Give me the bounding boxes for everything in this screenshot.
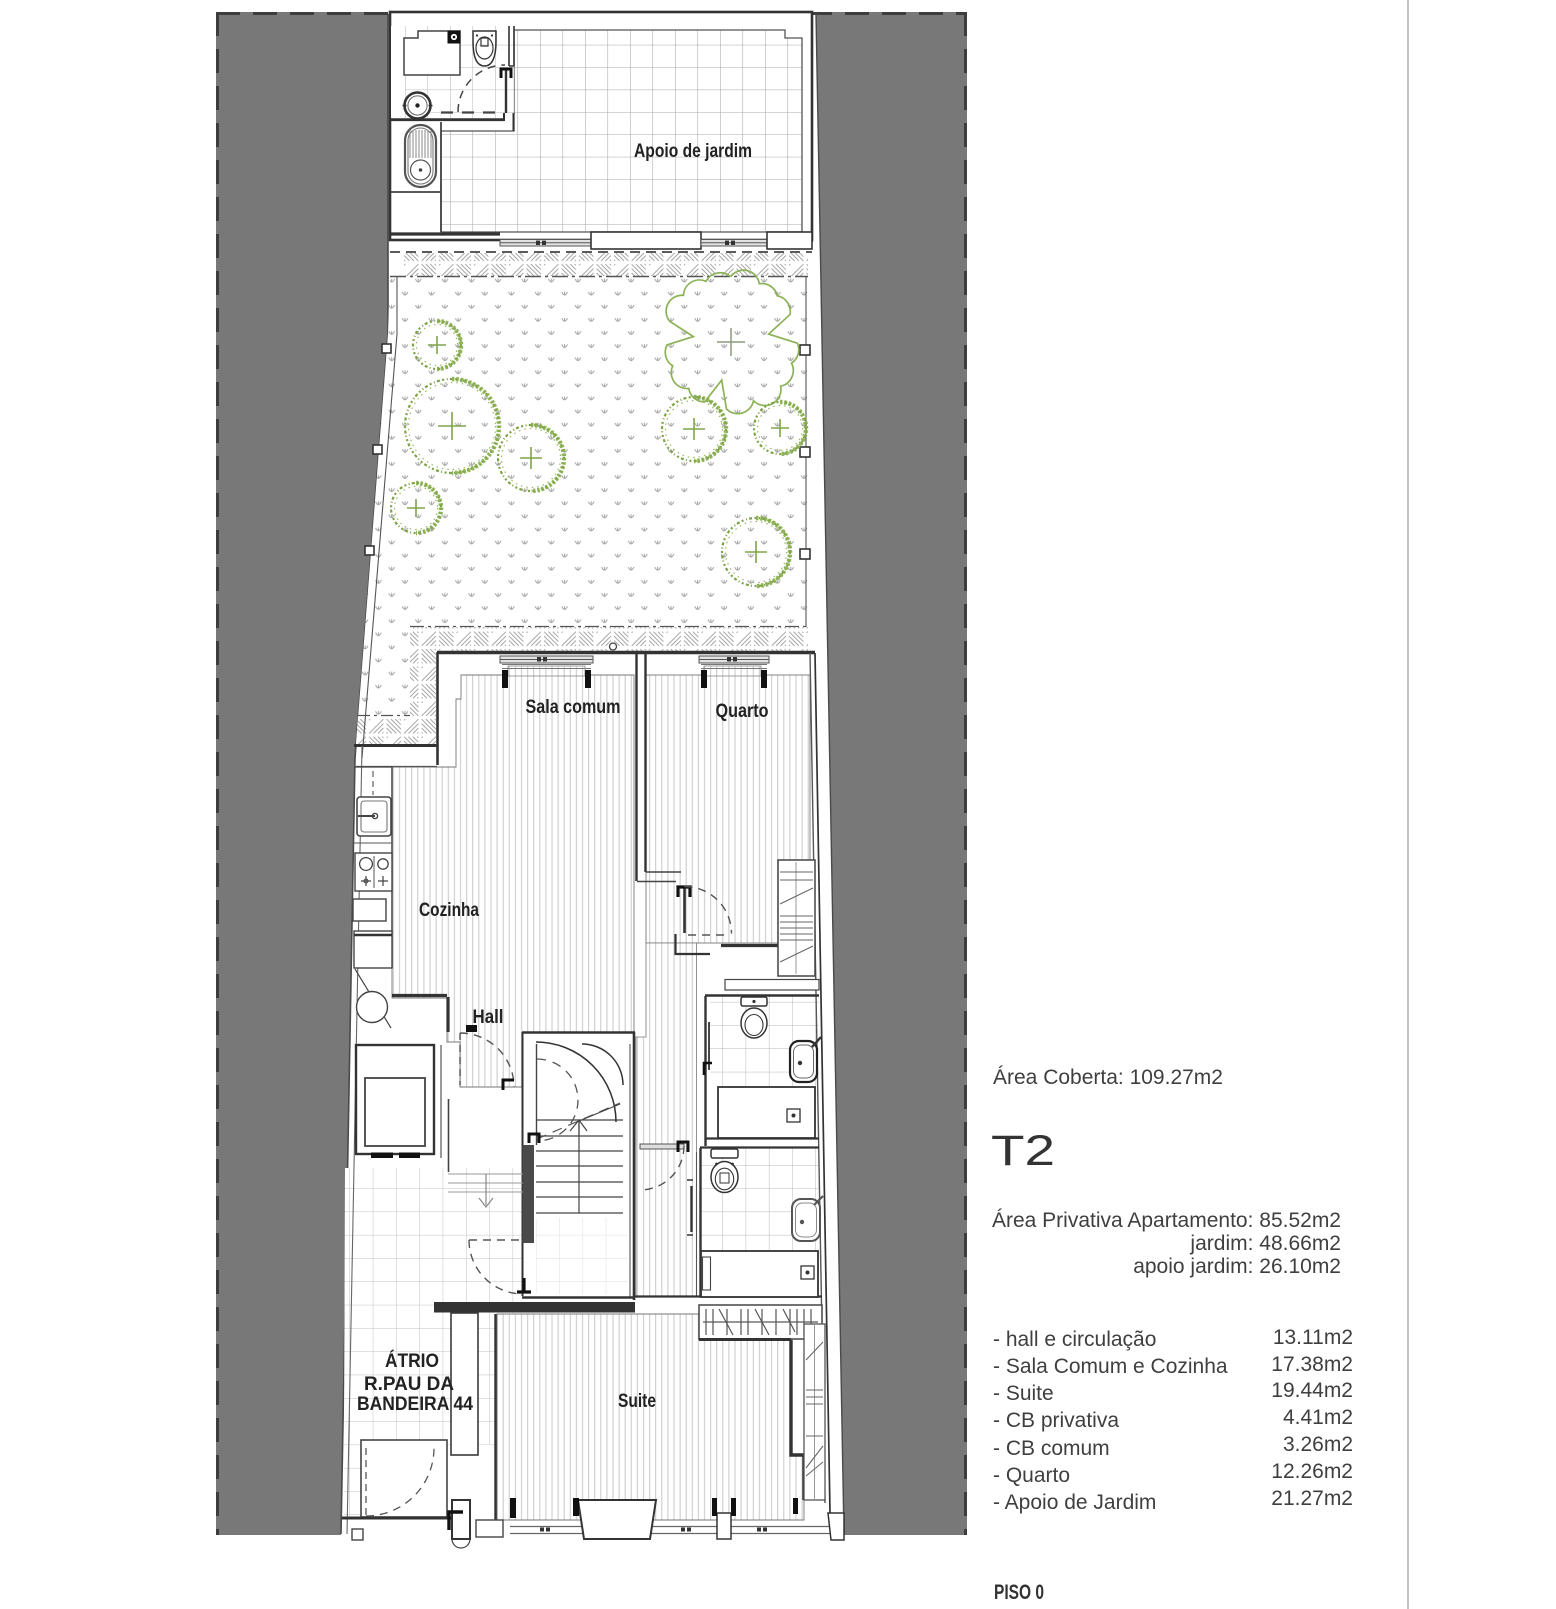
svg-text:BANDEIRA 44: BANDEIRA 44	[357, 1393, 473, 1415]
svg-text:13.11m2: 13.11m2	[1273, 1326, 1353, 1349]
svg-text:apoio jardim: 26.10m2: apoio jardim: 26.10m2	[1133, 1255, 1341, 1278]
svg-text:17.38m2: 17.38m2	[1271, 1353, 1353, 1376]
svg-text:Apoio de jardim: Apoio de jardim	[634, 140, 752, 162]
svg-text:4.41m2: 4.41m2	[1283, 1406, 1353, 1429]
svg-text:3.26m2: 3.26m2	[1283, 1433, 1353, 1456]
svg-text:Área Privativa Apartamento: 85: Área Privativa Apartamento: 85.52m2	[992, 1209, 1341, 1232]
svg-text:- Quarto: - Quarto	[993, 1464, 1070, 1487]
svg-text:21.27m2: 21.27m2	[1271, 1487, 1353, 1510]
svg-text:T2: T2	[991, 1127, 1055, 1175]
svg-text:- CB privativa: - CB privativa	[993, 1409, 1119, 1432]
svg-text:- Apoio de Jardim: - Apoio de Jardim	[993, 1491, 1156, 1514]
svg-text:- Suite: - Suite	[993, 1382, 1054, 1405]
svg-text:19.44m2: 19.44m2	[1271, 1379, 1353, 1402]
svg-text:Suite: Suite	[618, 1390, 656, 1412]
svg-text:- CB comum: - CB comum	[993, 1437, 1110, 1460]
svg-text:R.PAU DA: R.PAU DA	[364, 1373, 454, 1395]
svg-text:Área Coberta: 109.27m2: Área Coberta: 109.27m2	[993, 1066, 1223, 1089]
svg-text:- Sala Comum e Cozinha: - Sala Comum e Cozinha	[993, 1355, 1228, 1378]
svg-text:PISO 0: PISO 0	[994, 1581, 1044, 1604]
svg-text:Hall: Hall	[473, 1006, 504, 1028]
svg-text:ÁTRIO: ÁTRIO	[385, 1349, 439, 1372]
svg-text:Cozinha: Cozinha	[419, 899, 479, 921]
svg-text:jardim: 48.66m2: jardim: 48.66m2	[1189, 1232, 1341, 1255]
svg-text:- hall e circulação: - hall e circulação	[993, 1328, 1156, 1351]
svg-text:Quarto: Quarto	[716, 700, 769, 722]
svg-text:Sala comum: Sala comum	[526, 696, 621, 718]
svg-text:12.26m2: 12.26m2	[1271, 1460, 1353, 1483]
